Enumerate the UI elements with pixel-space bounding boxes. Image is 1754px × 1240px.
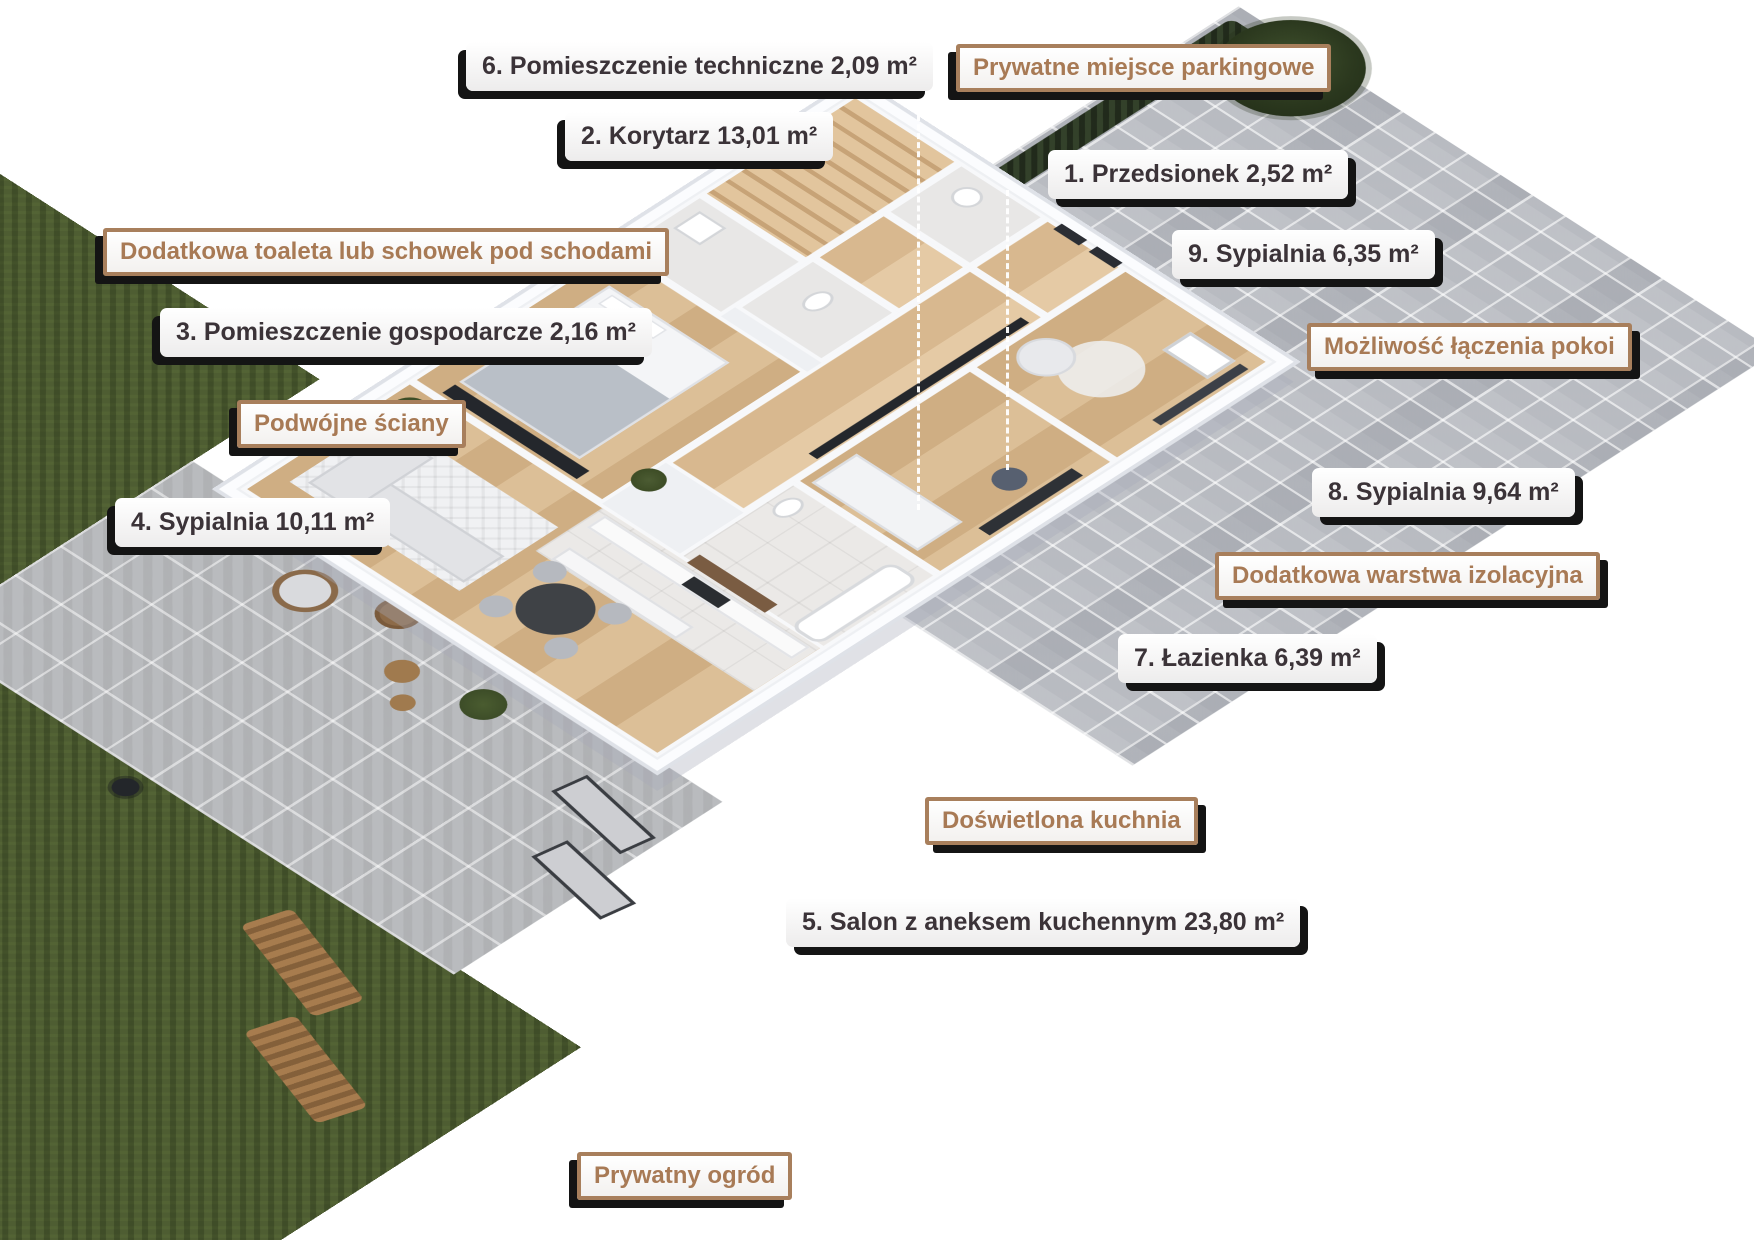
room-number: 5. [802, 908, 823, 936]
room-number: 3. [176, 318, 197, 346]
room-number: 6. [482, 52, 503, 80]
feature-label: Dodatkowa toaleta lub schowek pod schoda… [103, 228, 669, 276]
room-label: 4. Sypialnia 10,11 m² [115, 498, 390, 547]
room-label: 2. Korytarz 13,01 m² [565, 112, 833, 161]
room-number: 7. [1134, 644, 1155, 672]
feature-label: Prywatne miejsce parkingowe [956, 44, 1331, 92]
room-number: 4. [131, 508, 152, 536]
room-label-text: Salon z aneksem kuchennym 23,80 m² [830, 908, 1284, 936]
room-label-text: Sypialnia 6,35 m² [1216, 240, 1419, 268]
room-label-text: Sypialnia 10,11 m² [159, 508, 374, 536]
room-label-text: Pomieszczenie gospodarcze 2,16 m² [204, 318, 636, 346]
room-label: 1. Przedsionek 2,52 m² [1048, 150, 1348, 199]
room-label: 5. Salon z aneksem kuchennym 23,80 m² [786, 898, 1300, 947]
floorplan-visualization: 6. Pomieszczenie techniczne 2,09 m²2. Ko… [0, 0, 1754, 1240]
room-label: 7. Łazienka 6,39 m² [1118, 634, 1377, 683]
feature-label: Możliwość łączenia pokoi [1307, 323, 1632, 371]
room-label-text: Pomieszczenie techniczne 2,09 m² [510, 52, 917, 80]
feature-label: Prywatny ogród [577, 1152, 792, 1200]
room-label-text: Korytarz 13,01 m² [609, 122, 817, 150]
room-label-text: Przedsionek 2,52 m² [1092, 160, 1332, 188]
room-label: 6. Pomieszczenie techniczne 2,09 m² [466, 42, 933, 91]
room-number: 9. [1188, 240, 1209, 268]
feature-label: Doświetlona kuchnia [925, 797, 1198, 845]
room-number: 1. [1064, 160, 1085, 188]
room-number: 8. [1328, 478, 1349, 506]
annotations-layer: 6. Pomieszczenie techniczne 2,09 m²2. Ko… [0, 0, 1754, 1240]
room-label-text: Sypialnia 9,64 m² [1356, 478, 1559, 506]
room-label-text: Łazienka 6,39 m² [1162, 644, 1361, 672]
room-label: 3. Pomieszczenie gospodarcze 2,16 m² [160, 308, 652, 357]
room-label: 9. Sypialnia 6,35 m² [1172, 230, 1435, 279]
room-number: 2. [581, 122, 602, 150]
feature-label: Dodatkowa warstwa izolacyjna [1215, 552, 1600, 600]
feature-label: Podwójne ściany [237, 400, 466, 448]
room-label: 8. Sypialnia 9,64 m² [1312, 468, 1575, 517]
